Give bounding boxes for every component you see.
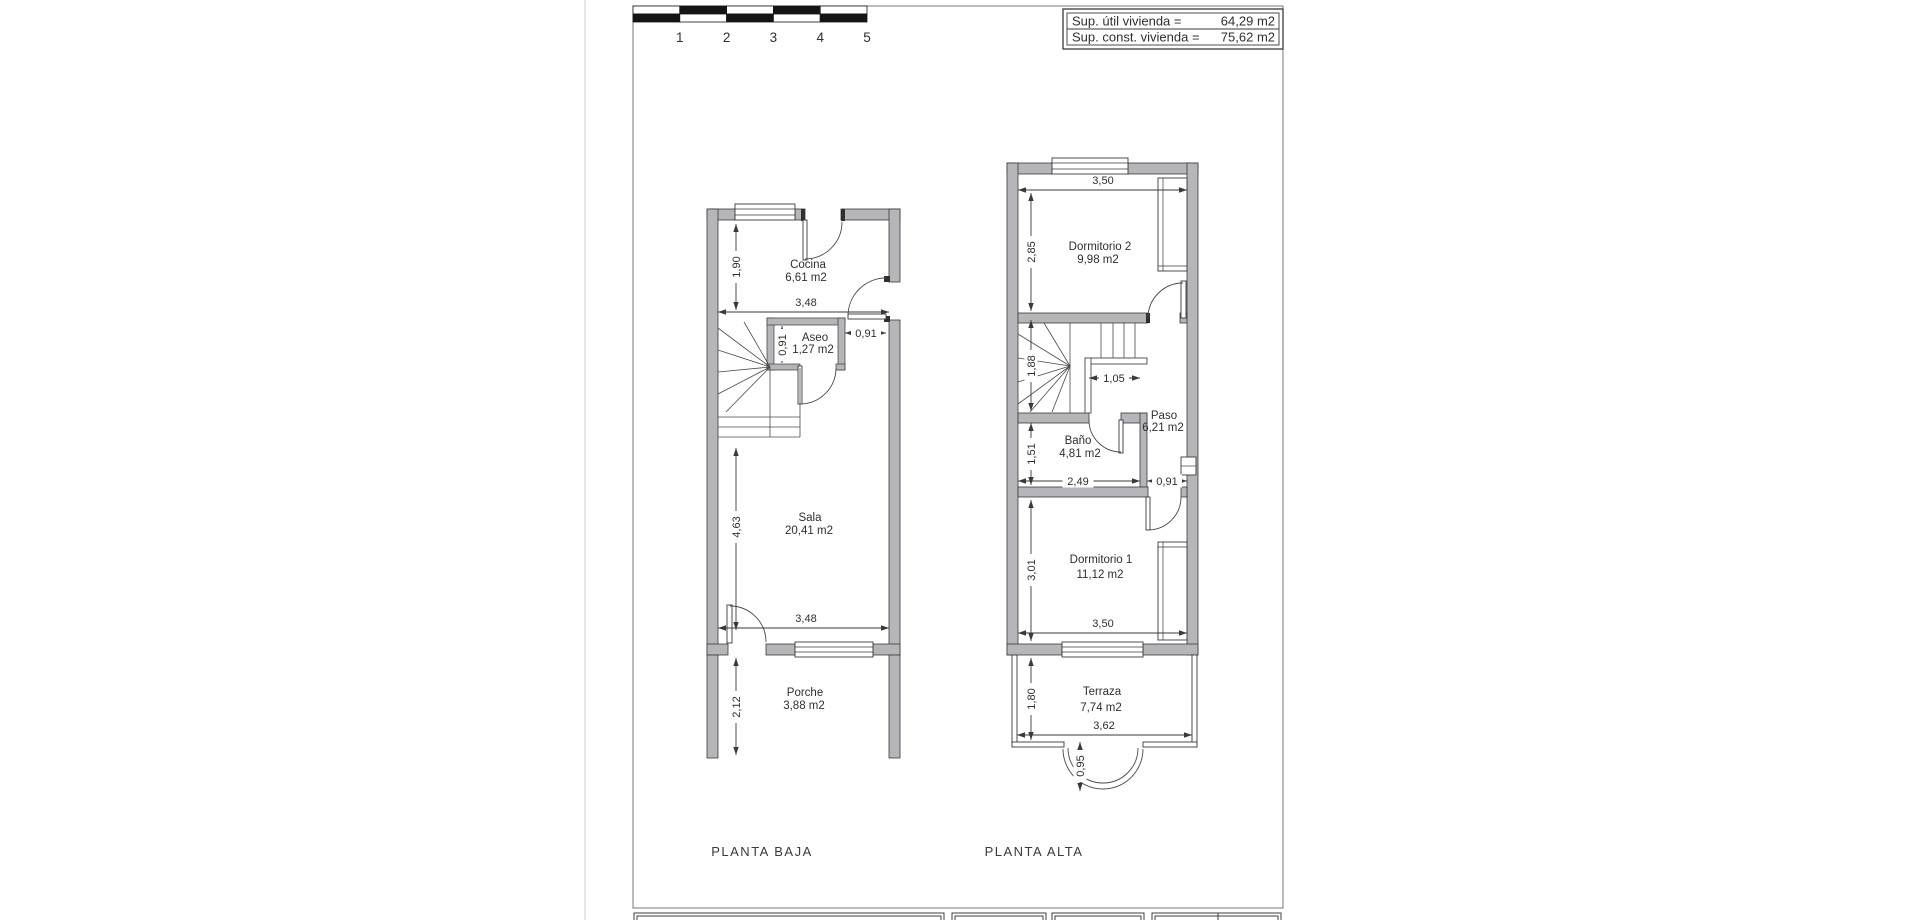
room-label-dorm1: Dormitorio 1	[1070, 554, 1133, 566]
dorm2-window	[1052, 158, 1128, 174]
dim-bano-height: 1,51	[1026, 443, 1038, 464]
built-area-value: 75,62 m2	[1221, 30, 1275, 45]
room-area-paso: 6,21 m2	[1142, 422, 1184, 434]
room-label-porche: Porche	[787, 687, 823, 699]
dim-dorm1-door-width: 0,91	[1156, 476, 1177, 488]
room-label-aseo: Aseo	[802, 332, 828, 344]
room-label-sala: Sala	[798, 512, 822, 524]
dim-cocina-width: 3,48	[795, 297, 816, 309]
bottom-title-strip	[634, 913, 1281, 920]
area-title-block: Sup. útil vivienda = 64,29 m2 Sup. const…	[1063, 9, 1283, 49]
scale-number-1: 1	[676, 30, 684, 45]
dim-sala-width: 3,48	[795, 613, 816, 625]
plan-title-baja: PLANTA BAJA	[711, 844, 813, 859]
dorm1-window	[1062, 642, 1143, 657]
dim-terraza-height: 1,80	[1026, 688, 1038, 709]
dim-dorm2-width: 3,50	[1092, 175, 1113, 187]
dim-landing-width: 1,05	[1103, 373, 1124, 385]
dim-terraza-width: 3,62	[1093, 720, 1114, 732]
room-label-paso: Paso	[1151, 410, 1177, 422]
room-area-sala: 20,41 m2	[785, 525, 833, 537]
room-area-terraza: 7,74 m2	[1080, 702, 1122, 714]
sala-window	[795, 642, 873, 657]
dim-entry-door-width: 0,91	[855, 328, 876, 340]
scale-number-2: 2	[723, 30, 731, 45]
dim-dorm1-width: 3,50	[1092, 618, 1113, 630]
floor-plan-sheet: 1 2 3 4 5 Sup. útil vivienda = 64,29 m2 …	[0, 0, 1920, 920]
room-label-dorm2: Dormitorio 2	[1069, 241, 1132, 253]
useful-area-value: 64,29 m2	[1221, 14, 1275, 29]
paso-window	[1181, 457, 1196, 475]
room-area-aseo: 1,27 m2	[792, 344, 834, 356]
scale-number-5: 5	[863, 30, 871, 45]
room-area-dorm1: 11,12 m2	[1076, 569, 1123, 581]
built-area-label: Sup. const. vivienda =	[1072, 30, 1200, 45]
scale-number-3: 3	[770, 30, 778, 45]
drawing-canvas: 1 2 3 4 5 Sup. útil vivienda = 64,29 m2 …	[0, 0, 1920, 920]
dim-cocina-height: 1,90	[731, 256, 743, 277]
dorm2-closet	[1158, 178, 1187, 271]
room-area-dorm2: 9,98 m2	[1077, 254, 1119, 266]
dim-aseo-height: 0,91	[777, 334, 789, 355]
room-label-bano: Baño	[1065, 435, 1092, 447]
dim-sala-height: 4,63	[731, 516, 743, 537]
room-area-cocina: 6,61 m2	[785, 272, 827, 284]
room-area-bano: 4,81 m2	[1059, 448, 1101, 460]
room-area-porche: 3,88 m2	[783, 700, 825, 712]
dorm1-closet	[1158, 542, 1187, 640]
room-label-cocina: Cocina	[790, 259, 826, 271]
dim-stair-height: 1,88	[1026, 355, 1038, 376]
scale-number-4: 4	[816, 30, 824, 45]
dim-porche-height: 2,12	[731, 696, 743, 717]
dim-bay-depth: 0,95	[1075, 755, 1087, 776]
useful-area-label: Sup. útil vivienda =	[1072, 14, 1181, 29]
plan-title-alta: PLANTA ALTA	[985, 844, 1084, 859]
dim-bano-width: 2,49	[1067, 476, 1088, 488]
dim-dorm1-height: 3,01	[1026, 559, 1038, 580]
room-label-terraza: Terraza	[1083, 686, 1122, 698]
dim-dorm2-height: 2,85	[1026, 241, 1038, 262]
kitchen-window	[735, 204, 795, 220]
